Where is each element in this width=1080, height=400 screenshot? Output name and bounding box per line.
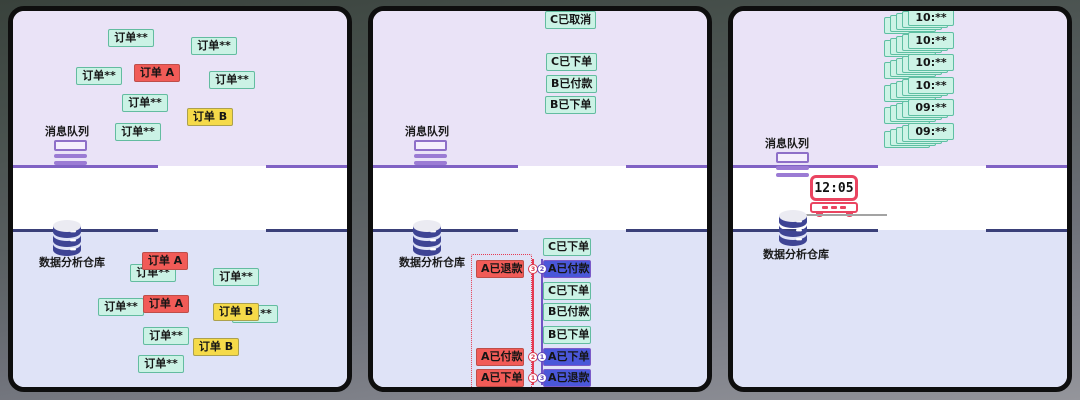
time-batch-card: 09:**	[908, 99, 954, 116]
warehouse-order-tag: 订单 B	[193, 338, 239, 356]
queue-message-tag: C已取消	[545, 11, 596, 29]
panel-unordered-orders: 消息队列 数据分析仓库 订单**订单**订单**订单 A订单**订单**订单 B…	[8, 6, 352, 392]
warehouse-order-tag: 订单 A	[143, 295, 189, 313]
queue-label: 消息队列	[765, 135, 809, 151]
message-queue-icon	[54, 140, 87, 165]
database-icon	[52, 219, 82, 257]
consumer-seq-badge: 3	[537, 373, 547, 383]
warehouse-order-tag: 订单**	[213, 268, 259, 286]
digital-clock-icon: 12:05	[810, 175, 858, 201]
queue-boundary-line	[373, 165, 518, 168]
queue-message-tag: 订单**	[115, 123, 161, 141]
producer-event-tag: A已下单	[476, 369, 524, 387]
producer-event-tag: A已付款	[476, 348, 524, 366]
consumer-event-tag: A已退款	[543, 369, 591, 387]
warehouse-label: 数据分析仓库	[39, 254, 105, 270]
warehouse-boundary-line	[13, 229, 158, 232]
database-icon	[412, 219, 442, 257]
consumer-seq-badge: 1	[537, 352, 547, 362]
queue-message-tag: B已下单	[545, 96, 596, 114]
time-batch-card: 10:**	[908, 54, 954, 71]
consumer-event-tag: B已下单	[543, 326, 591, 344]
time-batch-card: 10:**	[908, 32, 954, 49]
consumer-event-tag: A已付款	[543, 260, 591, 278]
time-batch-card: 10:**	[908, 77, 954, 94]
warehouse-label: 数据分析仓库	[763, 246, 829, 262]
queue-message-tag: 订单 B	[187, 108, 233, 126]
queue-message-tag: C已下单	[546, 53, 597, 71]
time-batch-card: 10:**	[908, 9, 954, 26]
queue-message-tag: 订单 A	[134, 64, 180, 82]
queue-boundary-line	[986, 165, 1067, 168]
queue-message-tag: B已付款	[546, 75, 597, 93]
consumer-event-tag: B已付款	[543, 303, 591, 321]
warehouse-boundary-line	[266, 229, 347, 232]
desk-line	[805, 214, 887, 216]
database-icon	[778, 209, 808, 247]
queue-message-tag: 订单**	[209, 71, 255, 89]
queue-message-tag: 订单**	[122, 94, 168, 112]
consumer-event-tag: A已下单	[543, 348, 591, 366]
message-queue-icon	[414, 140, 447, 165]
message-queue-icon	[776, 152, 809, 177]
panel-event-ordering: 消息队列 数据分析仓库 C已取消C已下单B已付款B已下单A已退款A已付款A已下单…	[368, 6, 712, 392]
warehouse-label: 数据分析仓库	[399, 254, 465, 270]
queue-label: 消息队列	[405, 123, 449, 139]
queue-message-tag: 订单**	[76, 67, 122, 85]
producer-event-tag: A已退款	[476, 260, 524, 278]
queue-message-tag: 订单**	[108, 29, 154, 47]
queue-message-tag: 订单**	[191, 37, 237, 55]
warehouse-boundary-line	[986, 229, 1067, 232]
consumer-event-tag: C已下单	[543, 282, 591, 300]
warehouse-boundary-line	[373, 229, 518, 232]
three-panel-diagram: 消息队列 数据分析仓库 订单**订单**订单**订单 A订单**订单**订单 B…	[0, 0, 1080, 400]
queue-boundary-line	[266, 165, 347, 168]
consumer-seq-badge: 2	[537, 264, 547, 274]
warehouse-boundary-line	[626, 229, 707, 232]
time-batch-card: 09:**	[908, 123, 954, 140]
warehouse-order-tag: 订单 B	[213, 303, 259, 321]
warehouse-order-tag: 订单**	[138, 355, 184, 373]
producer-sequence-line	[532, 259, 534, 385]
consumer-event-tag: C已下单	[543, 238, 591, 256]
consumer-sequence-line	[541, 259, 543, 385]
queue-label: 消息队列	[45, 123, 89, 139]
warehouse-order-tag: 订单 A	[142, 252, 188, 270]
panel-time-batches: 消息队列 12:05 数据分析仓库 10:**10:**10:**10:**09…	[728, 6, 1072, 392]
warehouse-order-tag: 订单**	[143, 327, 189, 345]
warehouse-order-tag: 订单**	[98, 298, 144, 316]
queue-boundary-line	[13, 165, 158, 168]
queue-boundary-line	[626, 165, 707, 168]
